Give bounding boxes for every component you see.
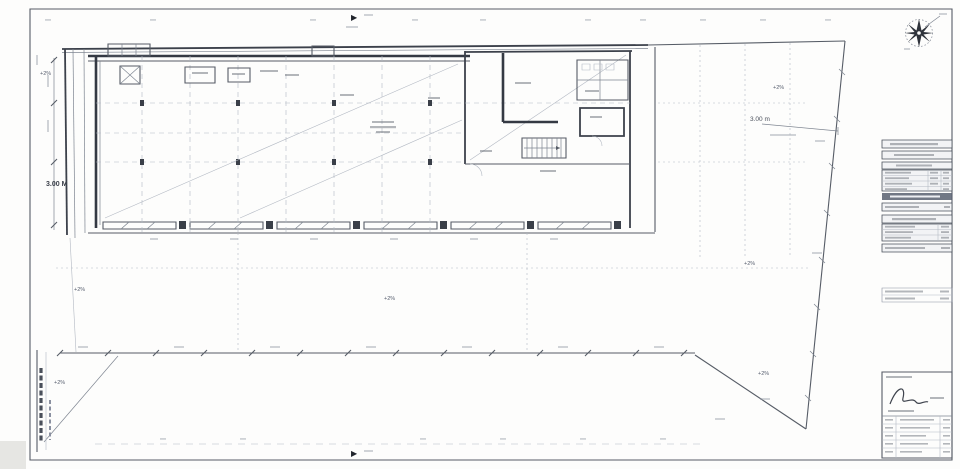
west-dimension-chain: [47, 57, 57, 230]
scanned-site-plan-sheet: ▶ ▶: [0, 0, 960, 469]
east-yard: [655, 43, 838, 258]
slope-mark: +2%: [773, 85, 784, 91]
slope-mark: +2%: [74, 287, 85, 293]
setback-right-label: 3.00 m: [750, 116, 770, 123]
slope-mark: +2%: [384, 296, 395, 302]
building-footprint: [88, 44, 655, 240]
south-dimension-numbers: [78, 346, 664, 348]
slope-mark: +2%: [54, 380, 65, 386]
section-marker-bottom: ▶: [351, 449, 358, 458]
interior-annotations: [120, 66, 602, 240]
staircase: [522, 138, 566, 158]
site-boundary: [44, 41, 845, 442]
section-marker-top-sub: [346, 26, 358, 28]
top-margin-ticks: [36, 19, 831, 65]
section-marker-top: ▶: [351, 13, 358, 22]
slope-mark: +2%: [744, 261, 755, 267]
setback-left-label: 3.00 M: [46, 181, 68, 188]
sheet-border: [30, 9, 952, 460]
slope-mark: +2%: [758, 371, 769, 377]
title-block: [882, 372, 952, 458]
scan-smudge: [0, 441, 26, 469]
section-marker-top-text: [364, 14, 373, 16]
column-strip: [103, 221, 621, 229]
bottom-margin-ticks: [160, 438, 666, 440]
site-plan-drawing: ▶ ▶: [0, 0, 960, 469]
section-marker-bottom-text: [364, 450, 373, 452]
schedule-table: [882, 140, 952, 302]
architect-signature: [890, 389, 928, 404]
west-street: [37, 350, 50, 452]
diagonal-lines: [105, 55, 626, 218]
structural-grid: [96, 56, 630, 232]
slope-mark: +2%: [40, 71, 51, 77]
south-yard: [56, 233, 808, 352]
north-compass-icon: [904, 13, 947, 50]
